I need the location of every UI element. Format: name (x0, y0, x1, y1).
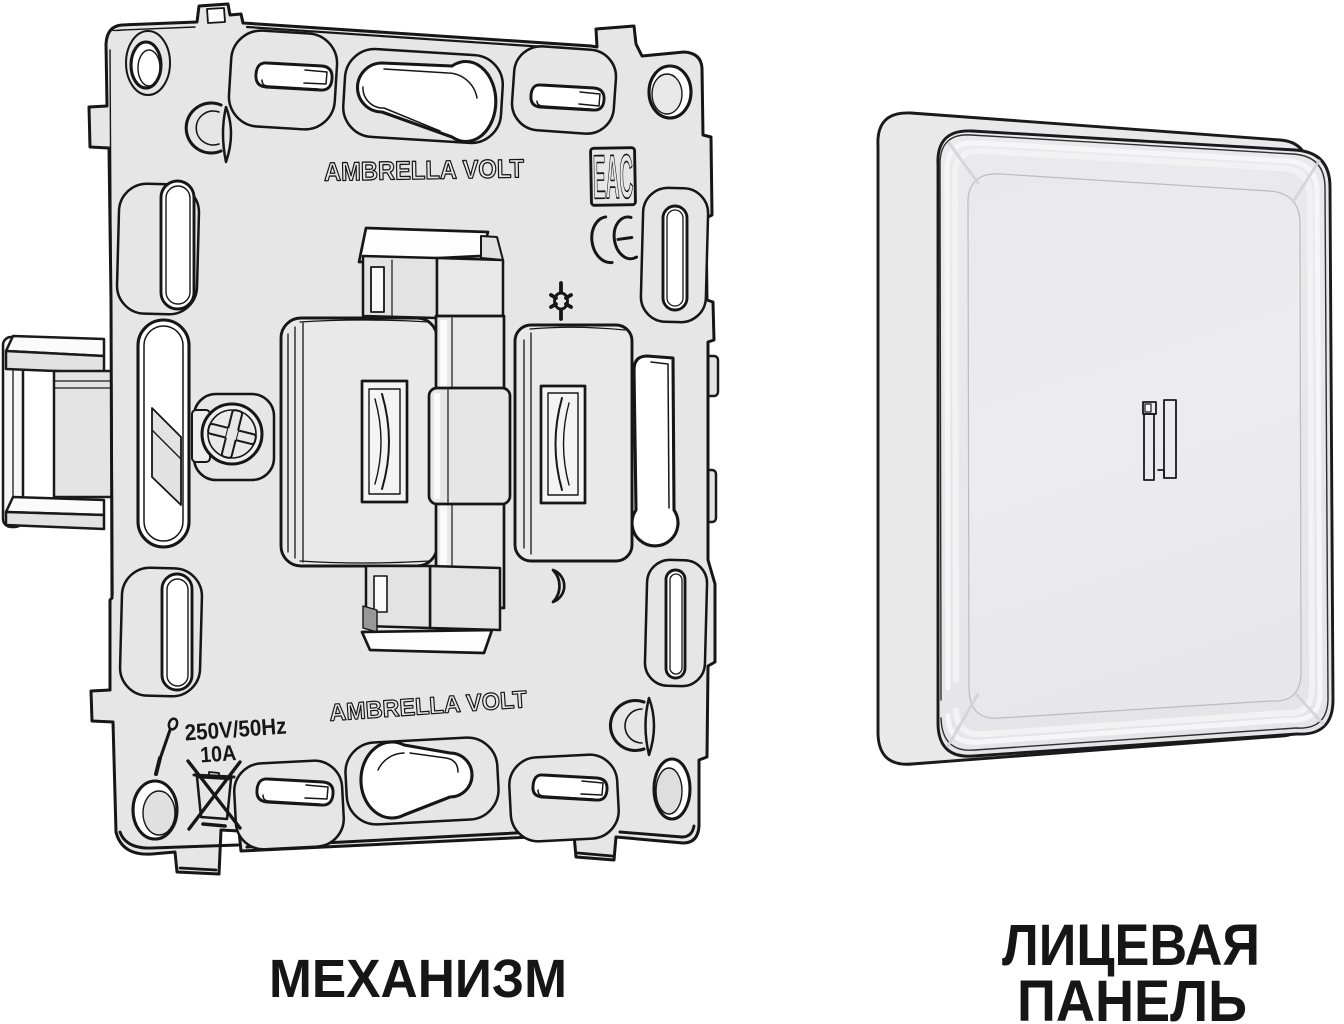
svg-text:EAC: EAC (592, 143, 633, 213)
svg-text:МЕХАНИЗМ: МЕХАНИЗМ (269, 949, 567, 1009)
svg-text:ПАНЕЛЬ: ПАНЕЛЬ (1017, 969, 1247, 1024)
svg-text:10A: 10A (199, 740, 237, 767)
svg-text:AMBRELLA VOLT: AMBRELLA VOLT (324, 153, 525, 186)
